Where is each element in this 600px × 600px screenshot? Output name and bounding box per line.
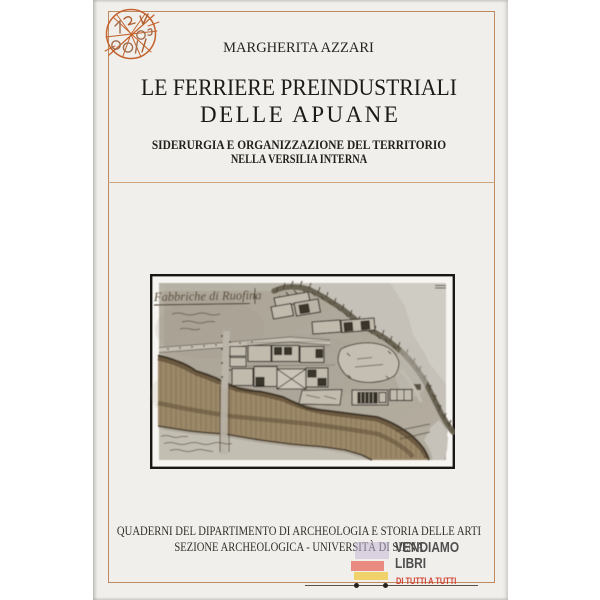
svg-text:Fabbriche di Ruofina: Fabbriche di Ruofina xyxy=(153,288,262,304)
